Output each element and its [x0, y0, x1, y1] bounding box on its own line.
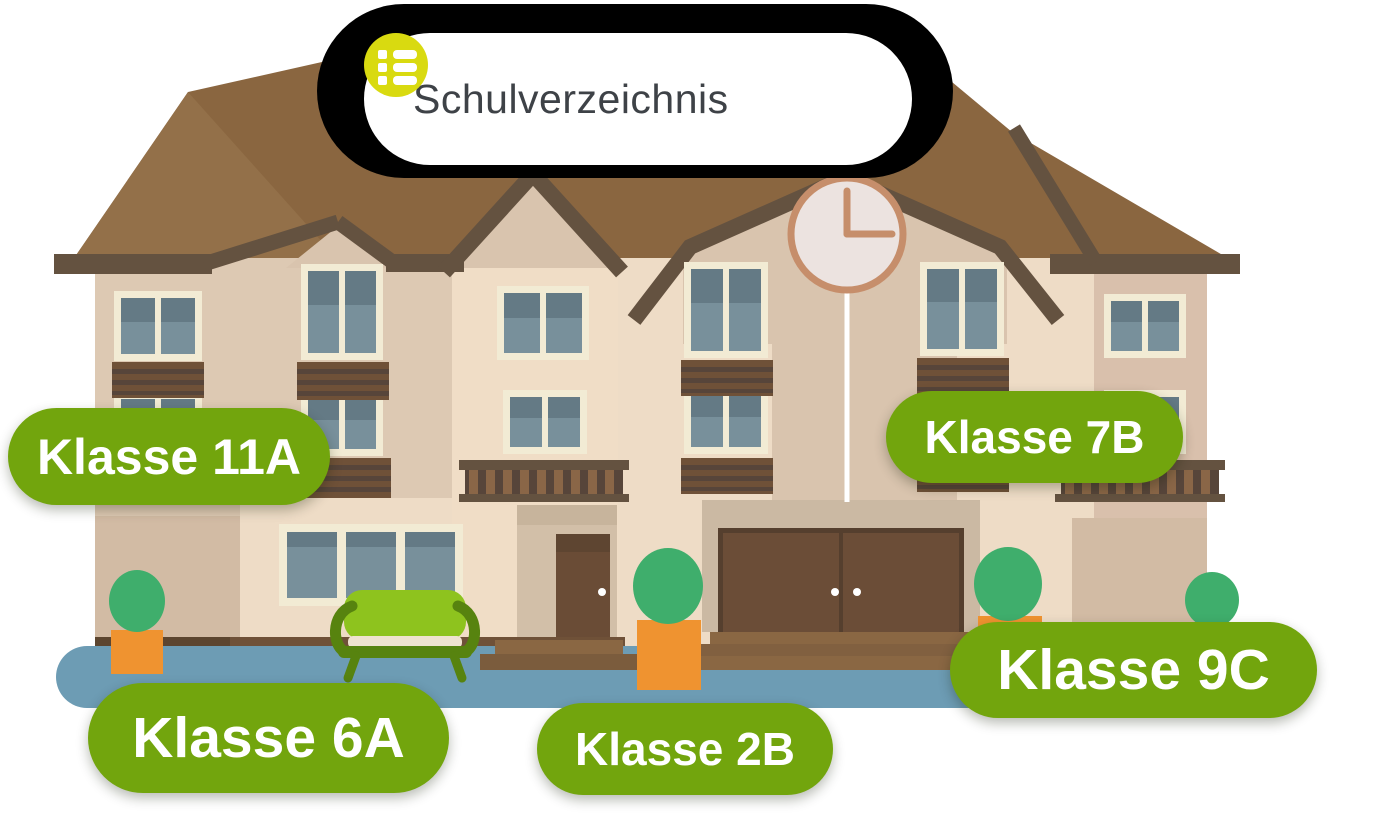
window — [301, 264, 383, 360]
class-label-2b[interactable]: Klasse 2B — [537, 703, 833, 795]
class-label-text: Klasse 11A — [37, 428, 301, 486]
entrance-door — [517, 505, 617, 638]
window — [684, 262, 768, 358]
window — [497, 286, 589, 360]
list-icon — [364, 33, 428, 97]
window — [920, 262, 1004, 356]
class-label-7b[interactable]: Klasse 7B — [886, 391, 1183, 483]
class-label-text: Klasse 2B — [575, 722, 795, 776]
class-label-9c[interactable]: Klasse 9C — [950, 622, 1317, 718]
window — [503, 390, 587, 454]
class-label-11a[interactable]: Klasse 11A — [8, 408, 330, 505]
class-label-text: Klasse 6A — [132, 705, 405, 771]
class-label-6a[interactable]: Klasse 6A — [88, 683, 449, 793]
class-label-text: Klasse 9C — [997, 637, 1270, 703]
window — [114, 291, 202, 361]
header-banner[interactable]: Schulverzeichnis — [364, 33, 912, 165]
class-label-text: Klasse 7B — [925, 410, 1145, 464]
window — [684, 388, 768, 454]
main-double-door — [702, 500, 980, 632]
school-directory-scene: Schulverzeichnis Klasse 11A Klasse 7B Kl… — [0, 0, 1392, 836]
window — [1104, 294, 1186, 358]
page-title: Schulverzeichnis — [413, 76, 729, 123]
balcony — [459, 460, 629, 502]
